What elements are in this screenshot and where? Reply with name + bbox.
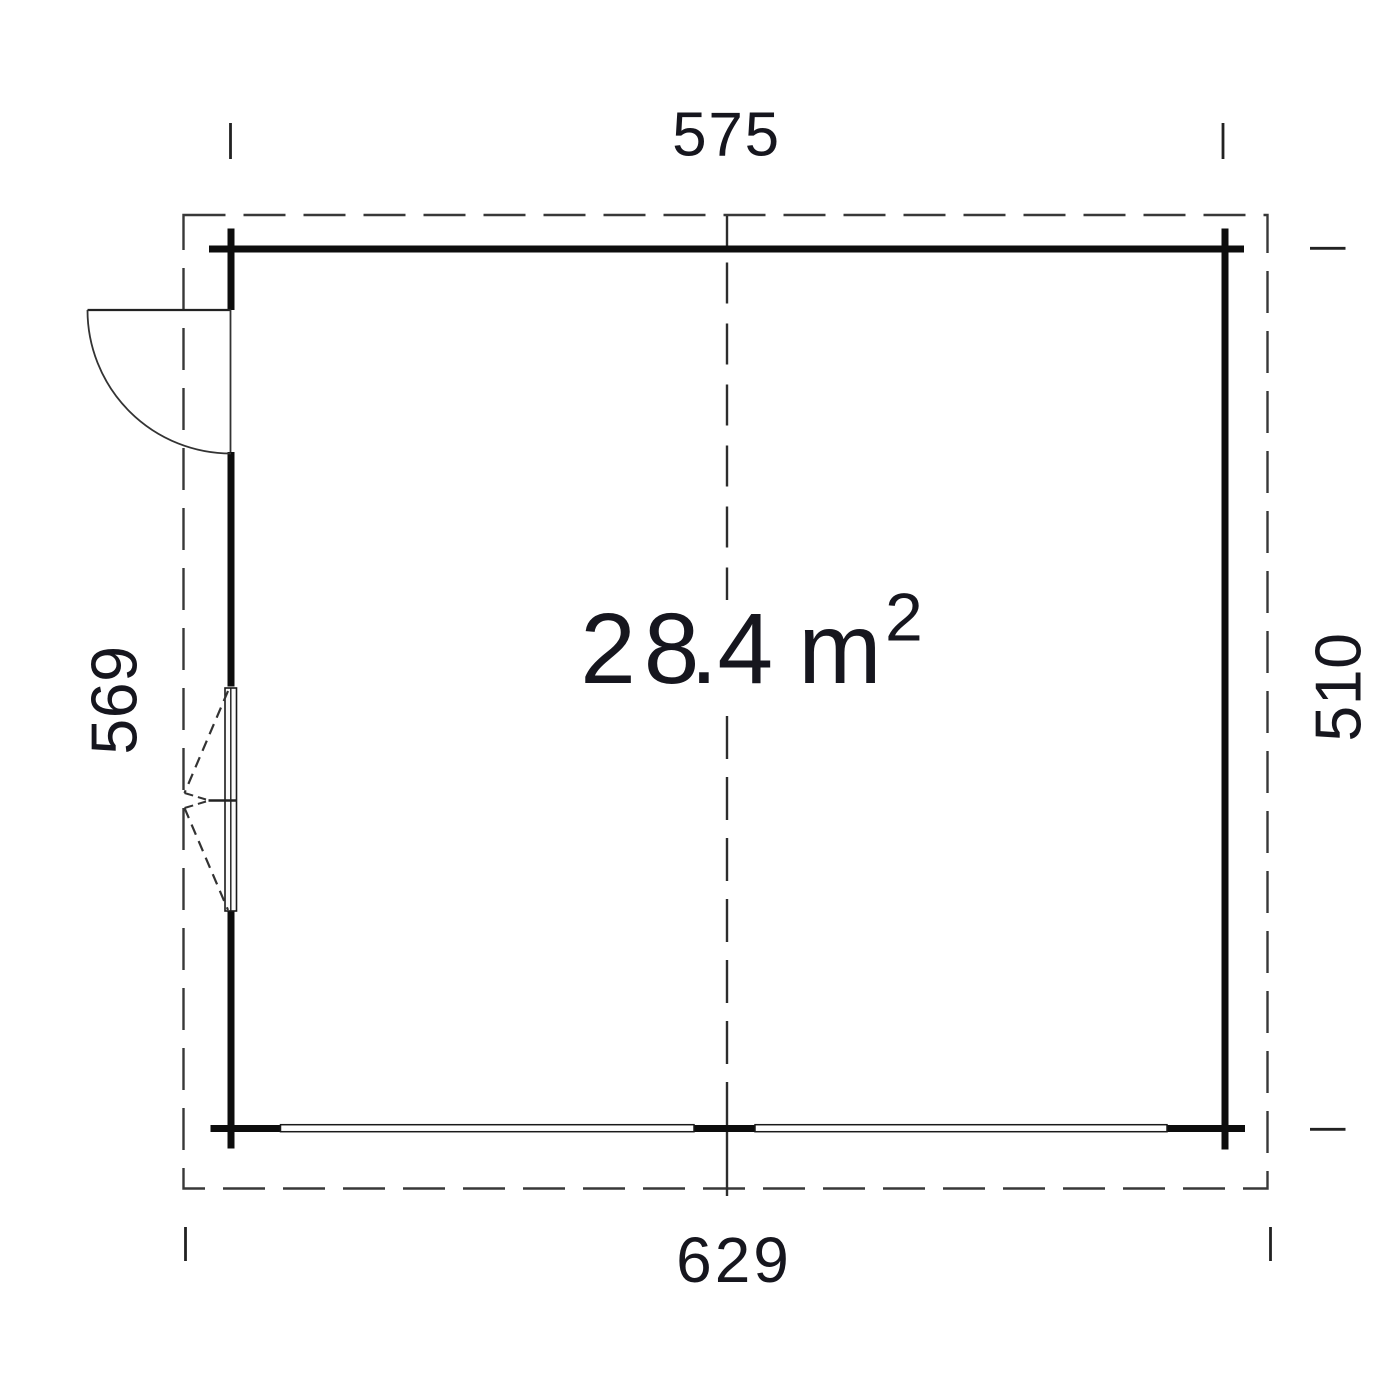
svg-text:28.4 m: 28.4 m	[580, 593, 881, 705]
svg-text:2: 2	[885, 580, 923, 656]
svg-text:510: 510	[1302, 632, 1374, 741]
svg-text:629: 629	[676, 1224, 792, 1296]
svg-text:569: 569	[78, 645, 150, 754]
svg-text:575: 575	[672, 101, 781, 170]
